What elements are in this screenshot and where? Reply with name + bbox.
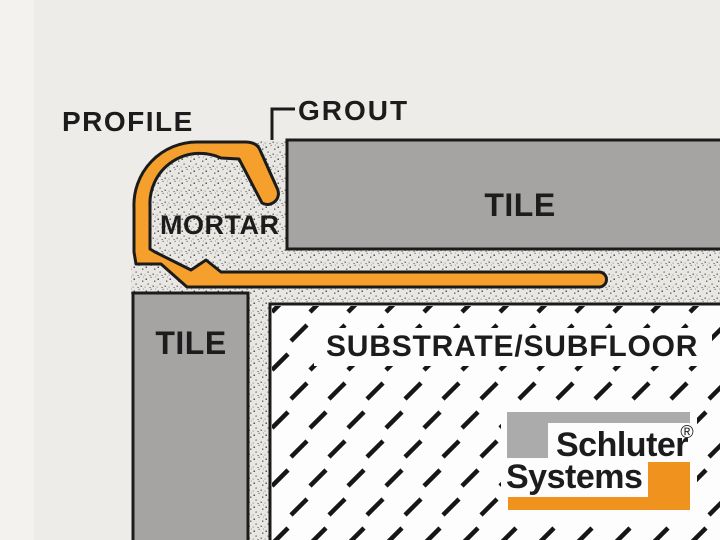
label-tile-top: TILE <box>484 187 555 223</box>
schluter-systems-logo: Schluter Systems ® <box>501 405 697 517</box>
label-grout: GROUT <box>298 95 409 126</box>
label-substrate-subfloor: SUBSTRATE/SUBFLOOR <box>326 330 698 363</box>
label-profile: PROFILE <box>62 106 194 137</box>
diagram-stage: Schluter Systems ® PROFILE GROUT MORTAR … <box>0 0 720 540</box>
left-edge-highlight <box>0 0 34 540</box>
registered-trademark-icon: ® <box>680 422 693 442</box>
logo-word-systems: Systems <box>506 458 642 496</box>
label-tile-side: TILE <box>155 325 226 361</box>
installation-diagram: Schluter Systems ® PROFILE GROUT MORTAR … <box>0 0 720 540</box>
label-mortar: MORTAR <box>160 210 279 240</box>
